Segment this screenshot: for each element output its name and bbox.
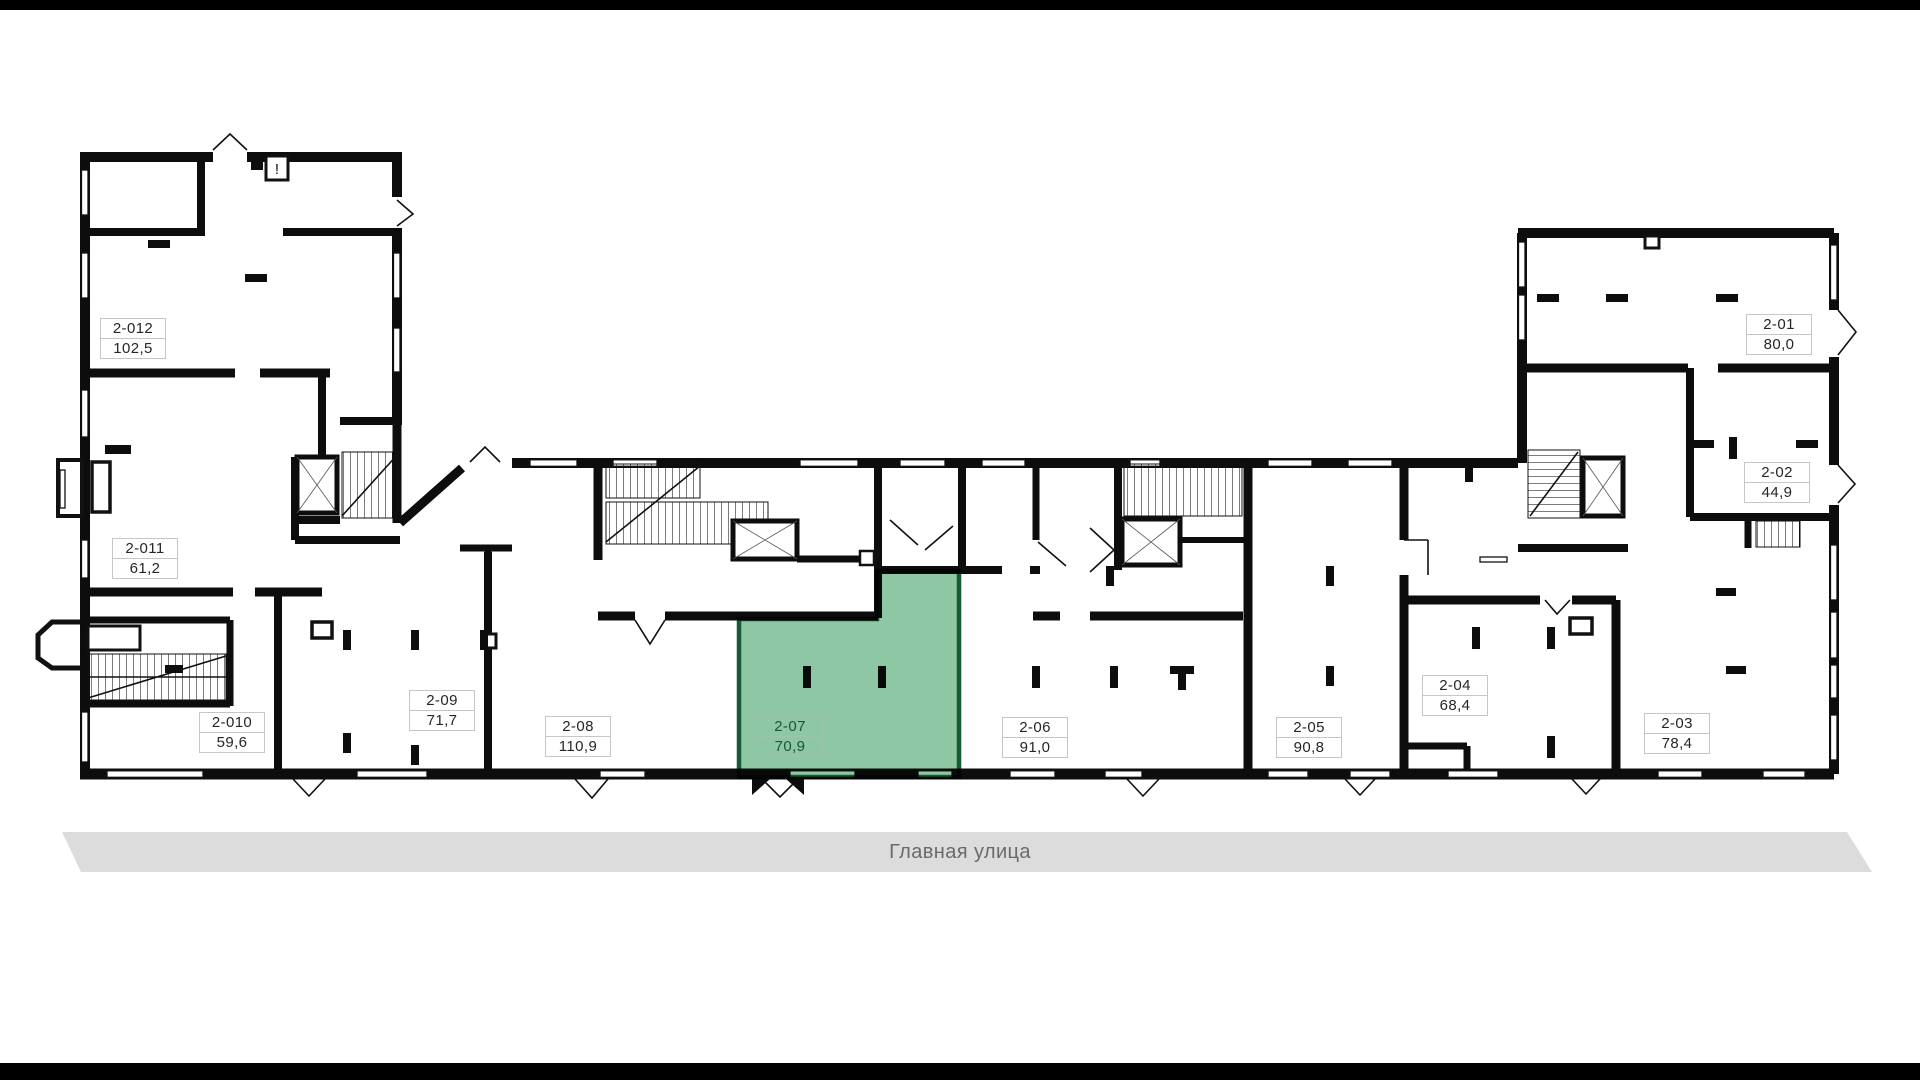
unit-number: 2-07 [757, 716, 823, 737]
unit-number: 2-011 [112, 538, 178, 559]
unit-label-2-02[interactable]: 2-02 44,9 [1744, 462, 1810, 503]
unit-label-2-05[interactable]: 2-05 90,8 [1276, 717, 1342, 758]
unit-area: 110,9 [545, 736, 611, 757]
unit-label-2-010[interactable]: 2-010 59,6 [199, 712, 265, 753]
unit-label-2-04[interactable]: 2-04 68,4 [1422, 675, 1488, 716]
svg-text:!: ! [275, 161, 279, 178]
floorplan-page: ! 2-012 102,5 2-011 61,2 2-010 59,6 2-09… [0, 0, 1920, 1080]
unit-number: 2-01 [1746, 314, 1812, 335]
unit-number: 2-09 [409, 690, 475, 711]
unit-area: 59,6 [199, 732, 265, 753]
unit-area: 68,4 [1422, 695, 1488, 716]
unit-area: 80,0 [1746, 334, 1812, 355]
stair-core-a [606, 464, 797, 559]
stair-bottom-left [88, 626, 226, 700]
unit-number: 2-02 [1744, 462, 1810, 483]
unit-label-2-09[interactable]: 2-09 71,7 [409, 690, 475, 731]
unit-area: 102,5 [100, 338, 166, 359]
unit-number: 2-06 [1002, 717, 1068, 738]
unit-number: 2-012 [100, 318, 166, 339]
unit-label-2-011[interactable]: 2-011 61,2 [112, 538, 178, 579]
warning-marker: ! [266, 156, 288, 180]
unit-number: 2-03 [1644, 713, 1710, 734]
stair-core-b [1122, 464, 1242, 565]
unit-number: 2-010 [199, 712, 265, 733]
unit-area: 78,4 [1644, 733, 1710, 754]
unit-label-2-03[interactable]: 2-03 78,4 [1644, 713, 1710, 754]
unit-area: 44,9 [1744, 482, 1810, 503]
unit-label-2-08[interactable]: 2-08 110,9 [545, 716, 611, 757]
unit-number: 2-04 [1422, 675, 1488, 696]
unit-label-2-07-selected[interactable]: 2-07 70,9 [757, 716, 823, 757]
street-name: Главная улица [0, 841, 1920, 864]
unit-area: 91,0 [1002, 737, 1068, 758]
unit-number: 2-05 [1276, 717, 1342, 738]
unit-label-2-06[interactable]: 2-06 91,0 [1002, 717, 1068, 758]
unit-label-2-01[interactable]: 2-01 80,0 [1746, 314, 1812, 355]
unit-area: 70,9 [757, 736, 823, 757]
unit-label-2-012[interactable]: 2-012 102,5 [100, 318, 166, 359]
floor-plan-drawing: ! [0, 0, 1920, 1080]
stair-left-block [297, 452, 398, 518]
unit-area: 71,7 [409, 710, 475, 731]
unit-area: 90,8 [1276, 737, 1342, 758]
unit-area: 61,2 [112, 558, 178, 579]
unit-number: 2-08 [545, 716, 611, 737]
